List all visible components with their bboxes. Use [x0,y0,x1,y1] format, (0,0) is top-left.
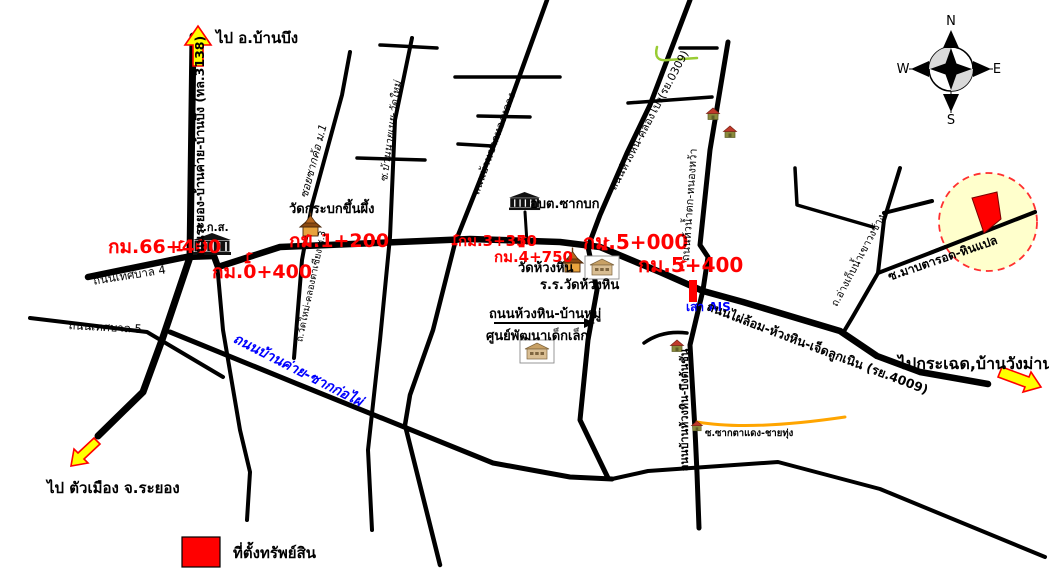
side-street-6 [628,97,712,103]
child-dev-center-label: ศูนย์พัฒนาเด็กเล็ก [486,326,588,344]
road-spur-curve [644,332,687,343]
road-label-ban-nai-noei: ซ.บ้านนายเนย-วัดใหม่ [377,78,404,183]
road-label-rayong-bankhai-banbueng: ถนนระยอง-บ้านค่าย-บ้านบึง (ทล.3138) [192,36,207,260]
compass-north-arrow-icon [943,30,959,48]
road-label-khlongpong: ถนนห้วงหิน-คลองโปง(รย.0309) [606,48,692,192]
road-label-thetsaban-5: ถนนเทศบาล 5 [68,318,142,336]
obt-sakbok-label: อบต.ซากบก [530,197,600,212]
road-label-huai-namtok: ถนนห้วน้ำตก-หนองหว้า [677,148,700,262]
destination-southwest-label: ไป ตัวเมือง จ.ระยอง [45,478,180,497]
property-location-map: N S W E ที่ตั้งทรัพย์สิน ไป อ.บ้านบึง ไป… [0,0,1049,571]
road-sak-thonglang [405,0,547,565]
map-canvas: N S W E ที่ตั้งทรัพย์สิน ไป อ.บ้านบึง ไป… [0,0,1049,571]
school-wat-huanghin-icon [585,256,619,279]
house-icon [724,126,737,138]
compass-south-arrow-icon [943,94,959,112]
destination-north-label: ไป อ.บ้านบึง [214,28,298,47]
compass-s-label: S [947,113,955,128]
compass-east-arrow-icon [973,61,991,77]
wat-krabok-label: วัดกระบกขึ้นผึ้ง [289,198,374,217]
legend-label: ที่ตั้งทรัพย์สิน [233,541,317,562]
road-saktadaeng-orange [697,417,845,426]
compass-rose: N S W E [897,14,1002,128]
compass-w-label: W [897,62,910,77]
school-wat-huanghin-label: ร.ร.วัดห้วงหิน [540,277,619,293]
road-label-phailom-4009: ถนนไผ่ล้อม-ห้วงหิน-เจ็ดลูกเนิน (รย.4009) [704,299,930,398]
compass-n-label: N [946,14,956,29]
road-ang-kep-nam [843,168,900,333]
road-south-of-junction [217,263,250,520]
road-buengtonchan [690,290,703,528]
destination-east-label: ไปกระเฉด,บ้านวังม่าน [896,354,1049,373]
wat-huanghin-label: วัดห้วงหิน [518,260,574,276]
km-5-000-label: กม.5+000 [583,230,688,254]
side-street-2 [380,45,437,48]
road-label-buengtonchan: ถนนบ้านห้วงหิน-บึงต้นชัน [678,348,691,471]
ais-tower-icon [689,280,697,302]
legend-swatch [182,537,220,567]
km-0-400-label: กม.0+400 [212,261,312,283]
arrow-southwest-icon [71,438,100,466]
compass-west-arrow-icon [911,61,929,77]
road-topright-spur [795,168,873,227]
compass-e-label: E [993,62,1001,77]
km-1-200-label: กม.1+200 [289,230,389,252]
road-bottom-east [612,462,1045,557]
road-label-saktadaeng: ซ.ซากตาแดง-ชายทุ่ง [705,428,794,439]
